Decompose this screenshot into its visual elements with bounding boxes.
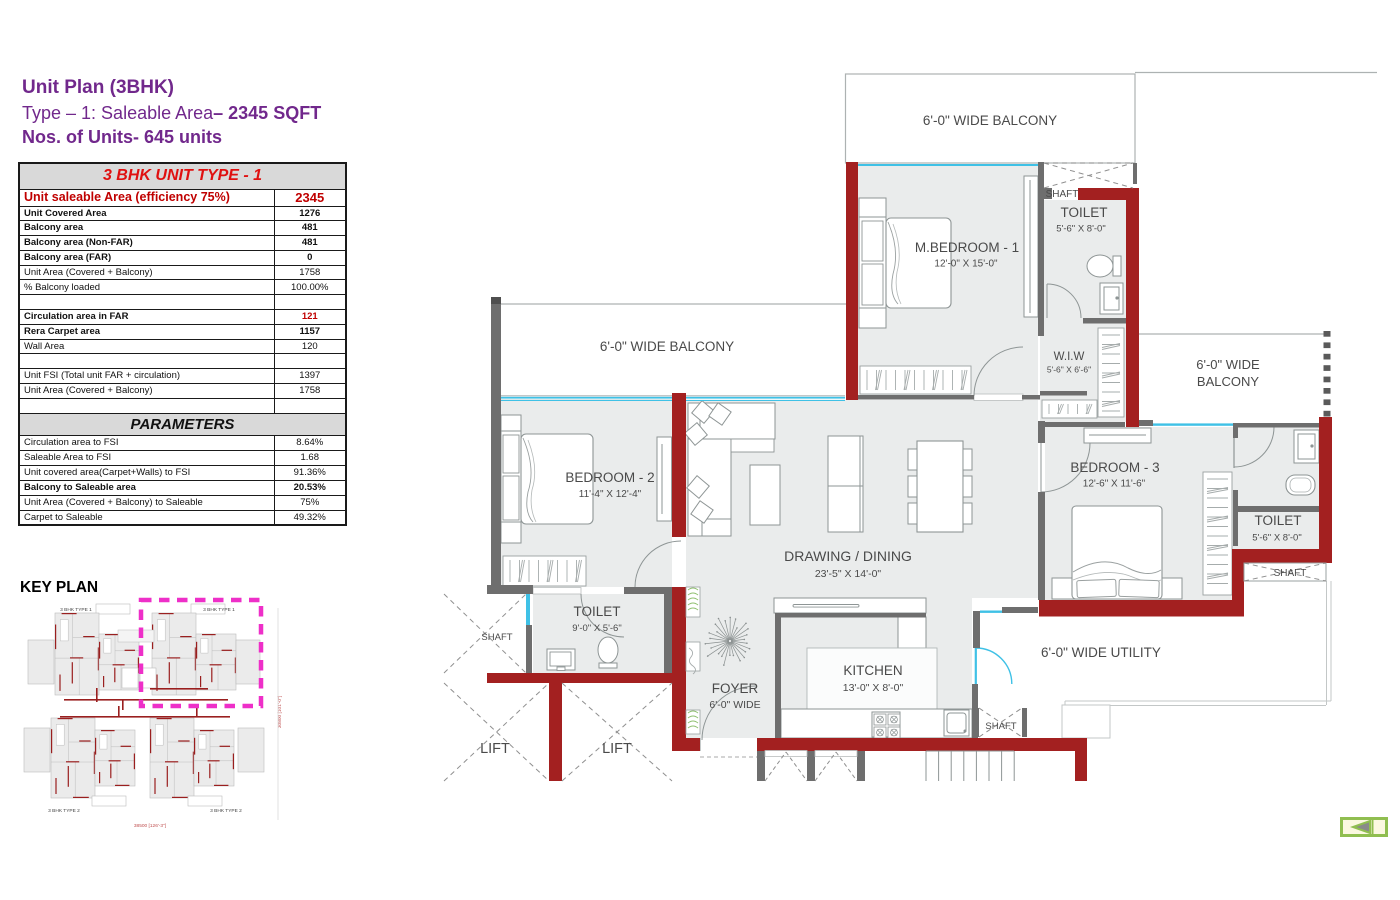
- svg-text:3 BHK TYPE 1: 3 BHK TYPE 1: [203, 607, 235, 613]
- svg-text:11'-4" X 12'-4": 11'-4" X 12'-4": [579, 489, 642, 500]
- svg-text:9'-0" X 5'-6": 9'-0" X 5'-6": [572, 623, 621, 634]
- svg-text:SHAFT: SHAFT: [985, 721, 1016, 732]
- svg-text:SHAFT: SHAFT: [1274, 568, 1307, 579]
- svg-text:W.I.W: W.I.W: [1054, 351, 1085, 363]
- svg-text:6'-0" WIDE BALCONY: 6'-0" WIDE BALCONY: [600, 339, 734, 354]
- svg-text:KITCHEN: KITCHEN: [843, 663, 902, 678]
- svg-text:TOILET: TOILET: [1254, 513, 1301, 528]
- svg-text:FOYER: FOYER: [712, 681, 759, 696]
- svg-text:23'-5" X 14'-0": 23'-5" X 14'-0": [815, 568, 882, 580]
- svg-text:TOILET: TOILET: [1060, 205, 1107, 220]
- svg-text:DRAWING / DINING: DRAWING / DINING: [784, 548, 912, 564]
- svg-text:SHAFT: SHAFT: [1046, 189, 1079, 200]
- svg-text:BEDROOM - 2: BEDROOM - 2: [565, 470, 654, 485]
- svg-text:M.BEDROOM - 1: M.BEDROOM - 1: [915, 240, 1019, 255]
- svg-text:5'-6" X 8'-0": 5'-6" X 8'-0": [1056, 224, 1105, 235]
- svg-text:5'-6" X 8'-0": 5'-6" X 8'-0": [1252, 533, 1301, 544]
- svg-text:13'-0" X 8'-0": 13'-0" X 8'-0": [843, 682, 904, 694]
- svg-text:38500 [126'-3"]: 38500 [126'-3"]: [134, 823, 166, 829]
- svg-text:3 BHK TYPE 2: 3 BHK TYPE 2: [210, 808, 242, 814]
- svg-text:5'-6" X 6'-6": 5'-6" X 6'-6": [1047, 365, 1091, 375]
- svg-text:6'-0" WIDE: 6'-0" WIDE: [709, 699, 760, 711]
- svg-text:BALCONY: BALCONY: [1197, 374, 1259, 389]
- svg-text:6'-0" WIDE BALCONY: 6'-0" WIDE BALCONY: [923, 113, 1057, 128]
- svg-text:12'-6" X 11'-6": 12'-6" X 11'-6": [1083, 479, 1146, 490]
- svg-text:TOILET: TOILET: [573, 604, 620, 619]
- svg-text:LIFT: LIFT: [480, 741, 510, 757]
- svg-text:3 BHK TYPE 1: 3 BHK TYPE 1: [60, 607, 92, 613]
- svg-text:6'-0" WIDE UTILITY: 6'-0" WIDE UTILITY: [1041, 645, 1161, 660]
- svg-text:SHAFT: SHAFT: [481, 632, 512, 643]
- svg-text:3 BHK TYPE 2: 3 BHK TYPE 2: [48, 808, 80, 814]
- svg-text:6'-0" WIDE: 6'-0" WIDE: [1196, 357, 1260, 372]
- svg-text:12'-0" X 15'-0": 12'-0" X 15'-0": [934, 259, 998, 270]
- svg-text:BEDROOM - 3: BEDROOM - 3: [1070, 460, 1159, 475]
- svg-text:LIFT: LIFT: [602, 741, 632, 757]
